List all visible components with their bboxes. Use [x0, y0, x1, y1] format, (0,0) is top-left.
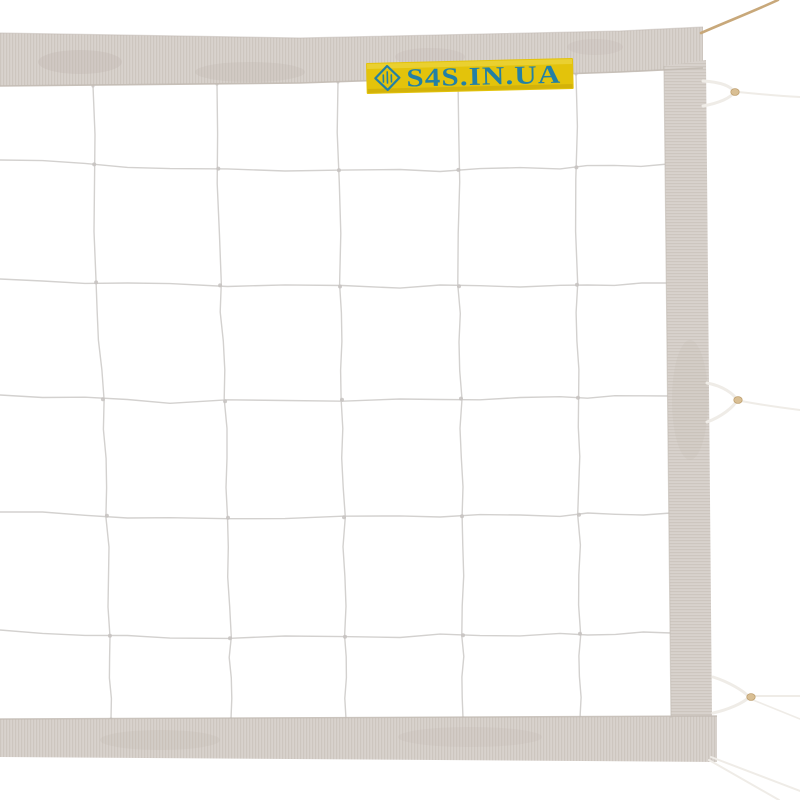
knot-bead	[747, 694, 755, 701]
brand-label: S4S.IN.UA	[366, 58, 574, 94]
photo-canvas: S4S.IN.UA	[0, 0, 800, 800]
attachment-loops	[703, 81, 800, 800]
net-mesh	[0, 72, 671, 720]
middle-loop	[707, 383, 737, 422]
bottom-loop	[713, 677, 749, 713]
edge-tapes	[0, 27, 717, 762]
brand-label-text: S4S.IN.UA	[406, 60, 562, 93]
suspension-rope-icon	[701, 0, 778, 33]
product-photo: S4S.IN.UA	[0, 0, 800, 800]
top-loop	[703, 81, 734, 106]
tape-shading	[38, 39, 708, 750]
tape-edge-shadows	[0, 27, 717, 719]
knot-bead	[731, 89, 739, 96]
knot-bead	[734, 397, 742, 404]
